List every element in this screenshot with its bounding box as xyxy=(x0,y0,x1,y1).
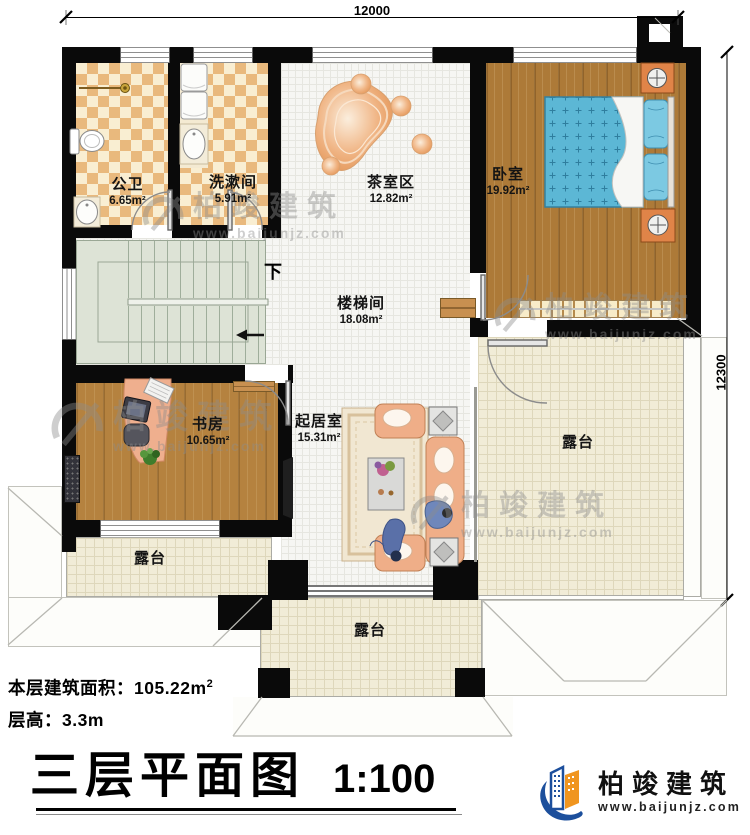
dimension-top: 12000 xyxy=(340,3,404,18)
pillar-living-sw xyxy=(268,560,308,600)
roof-bottom-center xyxy=(233,697,513,737)
floor-area-text: 本层建筑面积：105.22m2 xyxy=(8,675,213,700)
pillar-junction-left xyxy=(218,595,272,630)
floor-plan: 柏竣建筑www.baijunjz.com 柏竣建筑www.baijunjz.co… xyxy=(0,0,750,835)
bedroom-railing-rail xyxy=(519,308,670,310)
living-terrace-slider xyxy=(308,585,433,597)
terrace-bottom-floor xyxy=(260,597,482,697)
title-underline xyxy=(36,808,456,811)
title-row: 三层平面图 1:100 xyxy=(30,736,435,807)
hall-floor xyxy=(281,63,470,597)
pillar-terrace-se xyxy=(455,668,485,697)
title-underline-thin xyxy=(36,814,462,815)
study-floor xyxy=(76,383,278,520)
brand-text: 柏竣建筑 www.baijunjz.com xyxy=(598,770,741,815)
pillar-living-se xyxy=(433,560,478,600)
bathroom-door-gap xyxy=(132,225,172,238)
brand-name: 柏竣建筑 xyxy=(598,770,741,799)
room-label-terrace-right: 露台 xyxy=(540,435,616,452)
room-label-bathroom: 公卫6.65m² xyxy=(90,177,165,208)
brand-logo-icon xyxy=(537,763,589,821)
washroom-window xyxy=(193,47,253,63)
roof-bottom-right xyxy=(482,600,727,696)
stair-window xyxy=(62,268,76,340)
room-label-study: 书房10.65m² xyxy=(165,417,251,448)
stairs-treads-lower xyxy=(128,306,266,363)
wall-right xyxy=(686,63,701,337)
washroom-door-gap xyxy=(228,225,262,238)
tea-area-window xyxy=(312,47,433,63)
terrace-right-floor xyxy=(478,337,684,595)
room-label-terrace-bottom: 露台 xyxy=(332,623,408,640)
living-terrace-edge xyxy=(474,387,477,562)
wall-bath-wash xyxy=(168,63,180,225)
room-label-bedroom: 卧室19.92m² xyxy=(463,167,553,198)
brand-site: www.baijunjz.com xyxy=(598,800,741,814)
dimension-right: 12300 xyxy=(714,343,729,403)
room-label-living: 起居室15.31m² xyxy=(275,414,363,445)
pillar-terrace-sw xyxy=(258,668,290,698)
study-shelf-top xyxy=(233,381,275,392)
page-title: 三层平面图 xyxy=(30,736,305,807)
terrace-right-south-edge xyxy=(478,595,684,600)
bathroom-window xyxy=(120,47,170,63)
room-label-tea-area: 茶室区12.82m² xyxy=(348,175,434,206)
stairs-treads-upper xyxy=(128,241,266,298)
room-label-stairwell: 楼梯间18.08m² xyxy=(318,296,404,327)
wall-wash-hall xyxy=(268,63,281,238)
floor-height-text: 层高：3.3m xyxy=(8,707,104,732)
stairs-down-label: 下 xyxy=(264,258,282,284)
chimney-flue xyxy=(649,24,670,42)
study-wall-shelf xyxy=(64,455,80,503)
bedroom-window xyxy=(513,47,637,63)
room-label-terrace-left: 露台 xyxy=(112,551,188,568)
drawing-scale: 1:100 xyxy=(333,757,435,802)
wall-hall-bedroom-low xyxy=(470,318,486,337)
room-label-washroom: 洗漱间5.91m² xyxy=(193,175,273,206)
wall-study-living xyxy=(278,383,292,537)
hall-cabinet xyxy=(440,298,476,318)
washroom-counter xyxy=(178,63,208,168)
terrace-right-parapet xyxy=(683,337,701,597)
study-window xyxy=(100,520,220,537)
terrace-door-gap xyxy=(488,320,547,337)
brand-logo: 柏竣建筑 www.baijunjz.com xyxy=(537,763,741,821)
